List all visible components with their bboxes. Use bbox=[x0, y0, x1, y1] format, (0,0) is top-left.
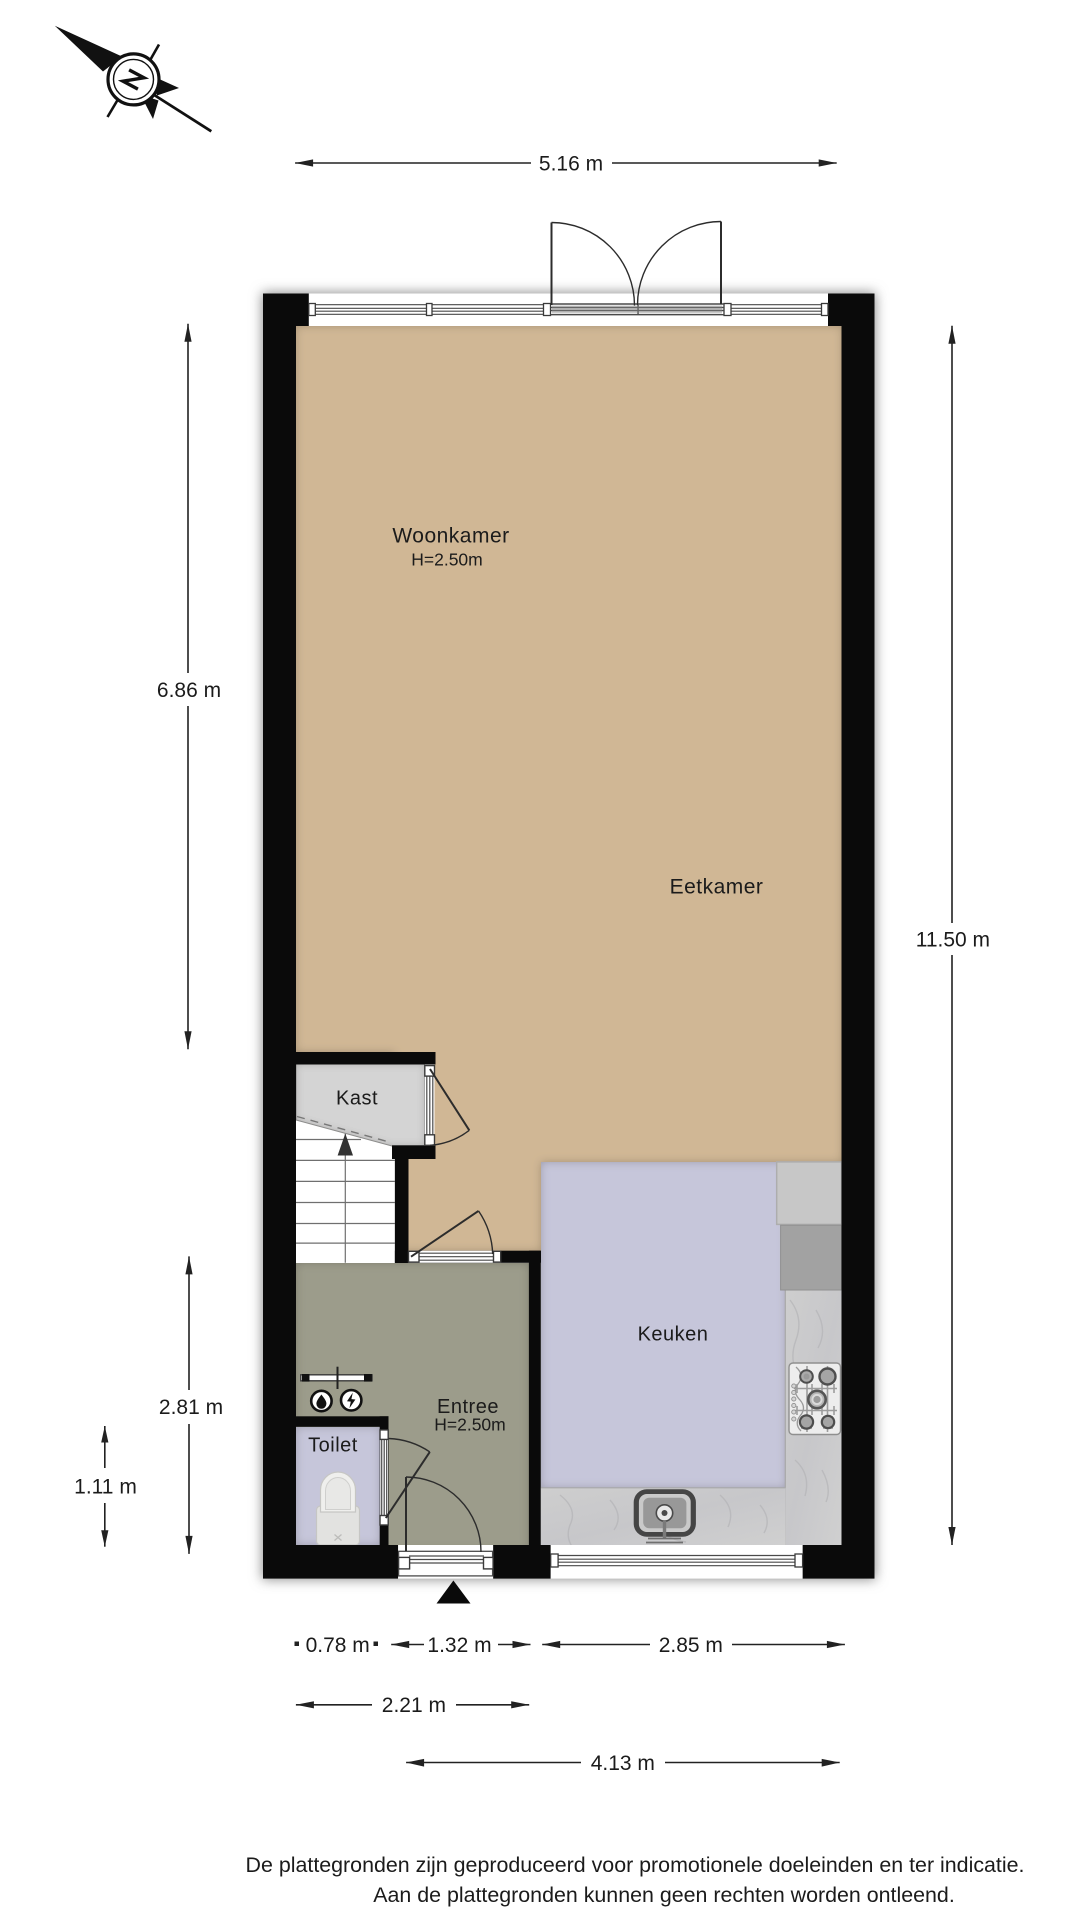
svg-text:2.81 m: 2.81 m bbox=[159, 1396, 223, 1419]
svg-text:Aan de plattegronden kunnen ge: Aan de plattegronden kunnen geen rechten… bbox=[373, 1883, 955, 1907]
svg-text:11.50 m: 11.50 m bbox=[916, 929, 990, 952]
svg-text:0.78 m: 0.78 m bbox=[306, 1634, 370, 1657]
svg-text:Kast: Kast bbox=[336, 1088, 378, 1110]
svg-text:2.21 m: 2.21 m bbox=[382, 1694, 446, 1717]
svg-text:H=2.50m: H=2.50m bbox=[411, 550, 483, 570]
svg-text:4.13 m: 4.13 m bbox=[591, 1752, 655, 1775]
svg-text:2.85 m: 2.85 m bbox=[659, 1634, 723, 1657]
svg-text:5.16 m: 5.16 m bbox=[539, 153, 603, 176]
svg-text:H=2.50m: H=2.50m bbox=[434, 1415, 506, 1435]
svg-text:Eetkamer: Eetkamer bbox=[670, 876, 764, 899]
svg-text:6.86 m: 6.86 m bbox=[157, 679, 221, 702]
svg-text:Toilet: Toilet bbox=[308, 1435, 358, 1457]
svg-text:1.11 m: 1.11 m bbox=[74, 1476, 137, 1499]
svg-text:Woonkamer: Woonkamer bbox=[392, 525, 509, 548]
svg-text:Keuken: Keuken bbox=[638, 1324, 709, 1346]
svg-text:De plattegronden zijn geproduc: De plattegronden zijn geproduceerd voor … bbox=[246, 1853, 1025, 1877]
svg-text:1.32 m: 1.32 m bbox=[427, 1634, 491, 1657]
